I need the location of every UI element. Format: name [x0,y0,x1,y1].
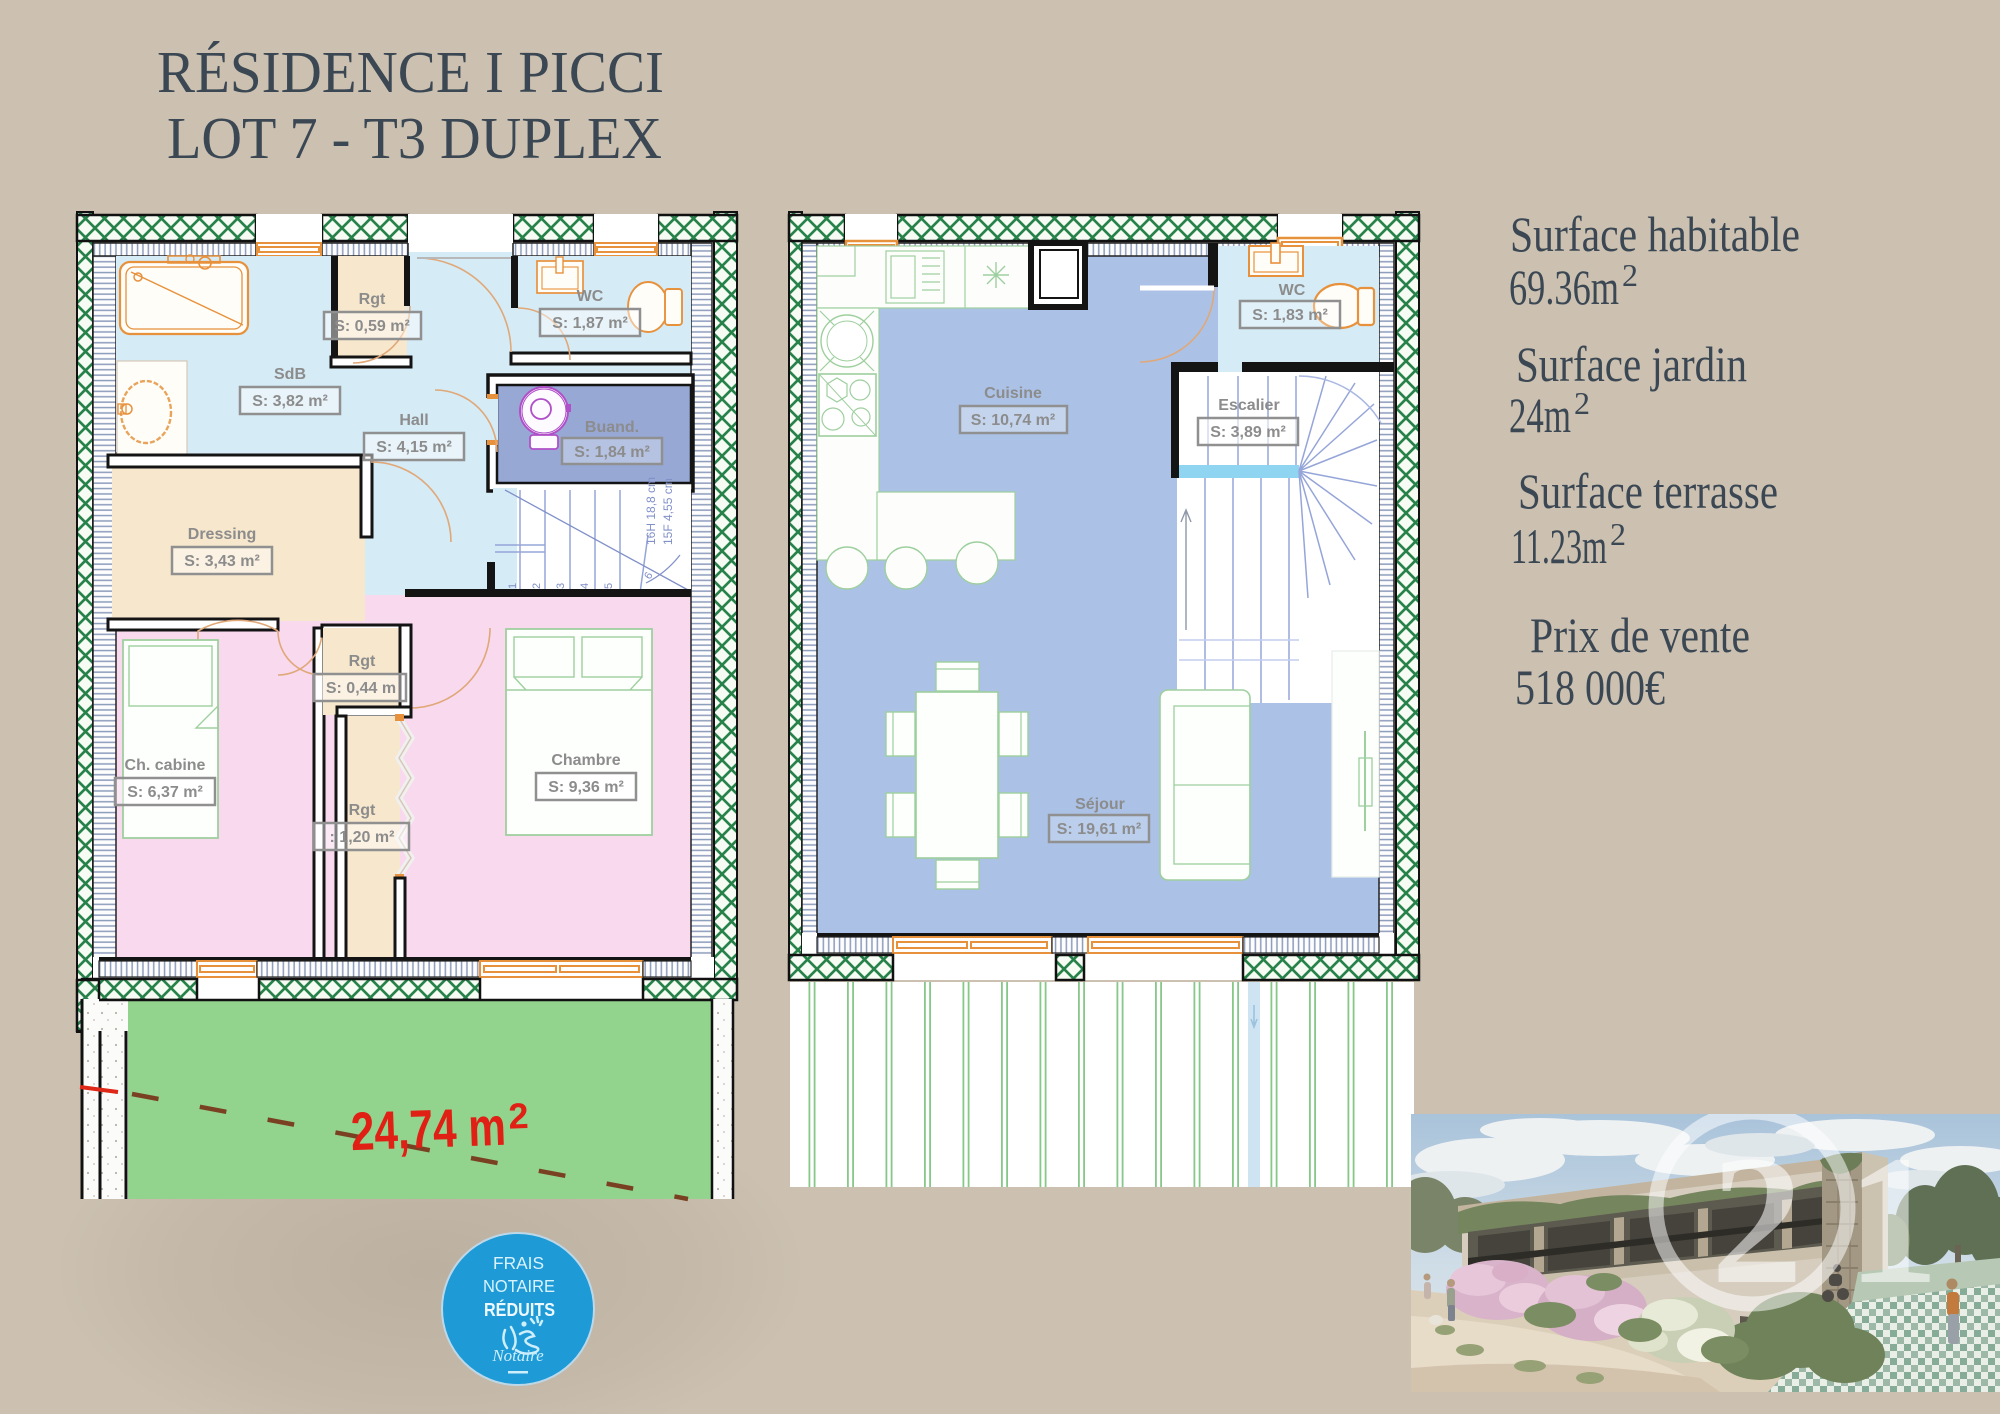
svg-text:Rgt: Rgt [349,802,376,819]
svg-text:S: 10,74 m²: S: 10,74 m² [971,412,1055,429]
svg-text:S: 3,82 m²: S: 3,82 m² [252,393,328,410]
svg-text:3: 3 [555,583,567,589]
svg-text:16H 18,8 cm: 16H 18,8 cm [644,477,658,545]
svg-text:S: 3,89 m²: S: 3,89 m² [1210,424,1286,441]
svg-text:S: 4,15 m²: S: 4,15 m² [376,439,452,456]
svg-text:Rgt: Rgt [359,291,386,308]
svg-text:Hall: Hall [399,412,428,429]
svg-text:Dressing: Dressing [188,526,256,543]
svg-text:RÉSIDENCE I PICCI: RÉSIDENCE I PICCI [157,39,664,105]
svg-text:RÉDUITS: RÉDUITS [484,1299,555,1320]
svg-text:Rgt: Rgt [349,653,376,670]
svg-text:S: 1,84 m²: S: 1,84 m² [574,444,650,461]
svg-text:Buand.: Buand. [585,419,639,436]
svg-text:S: 3,43 m²: S: 3,43 m² [184,553,260,570]
svg-text:: 1,20 m²: : 1,20 m² [330,829,395,846]
svg-text:Escalier: Escalier [1218,397,1279,414]
svg-text:S: 1,87 m²: S: 1,87 m² [552,315,628,332]
svg-text:WC: WC [577,288,604,305]
svg-text:S: 6,37 m²: S: 6,37 m² [127,784,203,801]
svg-text:4: 4 [579,583,591,589]
svg-text:NOTAIRE: NOTAIRE [483,1276,555,1296]
svg-text:Surface habitable: Surface habitable [1510,206,1800,262]
svg-text:518 000€: 518 000€ [1515,659,1665,715]
svg-text:15F 4,55 cm: 15F 4,55 cm [661,478,675,545]
svg-text:Notaire: Notaire [491,1346,544,1365]
svg-text:WC: WC [1279,282,1306,299]
svg-text:2: 2 [1711,1118,1804,1323]
svg-text:2: 2 [1574,385,1590,421]
svg-text:S: 0,59 m²: S: 0,59 m² [334,318,410,335]
svg-text:LOT 7 - T3 DUPLEX: LOT 7 - T3 DUPLEX [167,105,662,171]
svg-text:S: 0,44 m: S: 0,44 m [326,680,396,697]
svg-text:Séjour: Séjour [1075,796,1125,813]
svg-text:S: 1,83 m²: S: 1,83 m² [1252,307,1328,324]
svg-text:1: 1 [1847,1118,1940,1323]
svg-text:2: 2 [531,583,543,589]
svg-text:1: 1 [507,583,519,589]
svg-text:2: 2 [1622,257,1638,293]
svg-text:FRAIS: FRAIS [493,1253,544,1273]
svg-text:Cuisine: Cuisine [984,385,1042,402]
svg-text:5: 5 [603,583,615,589]
svg-text:24m: 24m [1509,387,1571,443]
svg-text:11.23m: 11.23m [1511,518,1607,574]
svg-text:69.36m: 69.36m [1509,259,1619,315]
svg-text:Surface terrasse: Surface terrasse [1518,463,1778,519]
svg-text:Prix de vente: Prix de vente [1530,607,1750,663]
svg-text:2: 2 [508,1095,529,1137]
svg-text:Surface jardin: Surface jardin [1516,336,1747,392]
svg-text:Chambre: Chambre [551,752,620,769]
svg-text:SdB: SdB [274,366,306,383]
svg-text:Ch. cabine: Ch. cabine [125,757,206,774]
svg-text:2: 2 [1610,516,1626,552]
svg-text:S: 19,61 m²: S: 19,61 m² [1057,821,1141,838]
svg-text:24,74 m: 24,74 m [350,1097,507,1162]
svg-text:S: 9,36 m²: S: 9,36 m² [548,779,624,796]
